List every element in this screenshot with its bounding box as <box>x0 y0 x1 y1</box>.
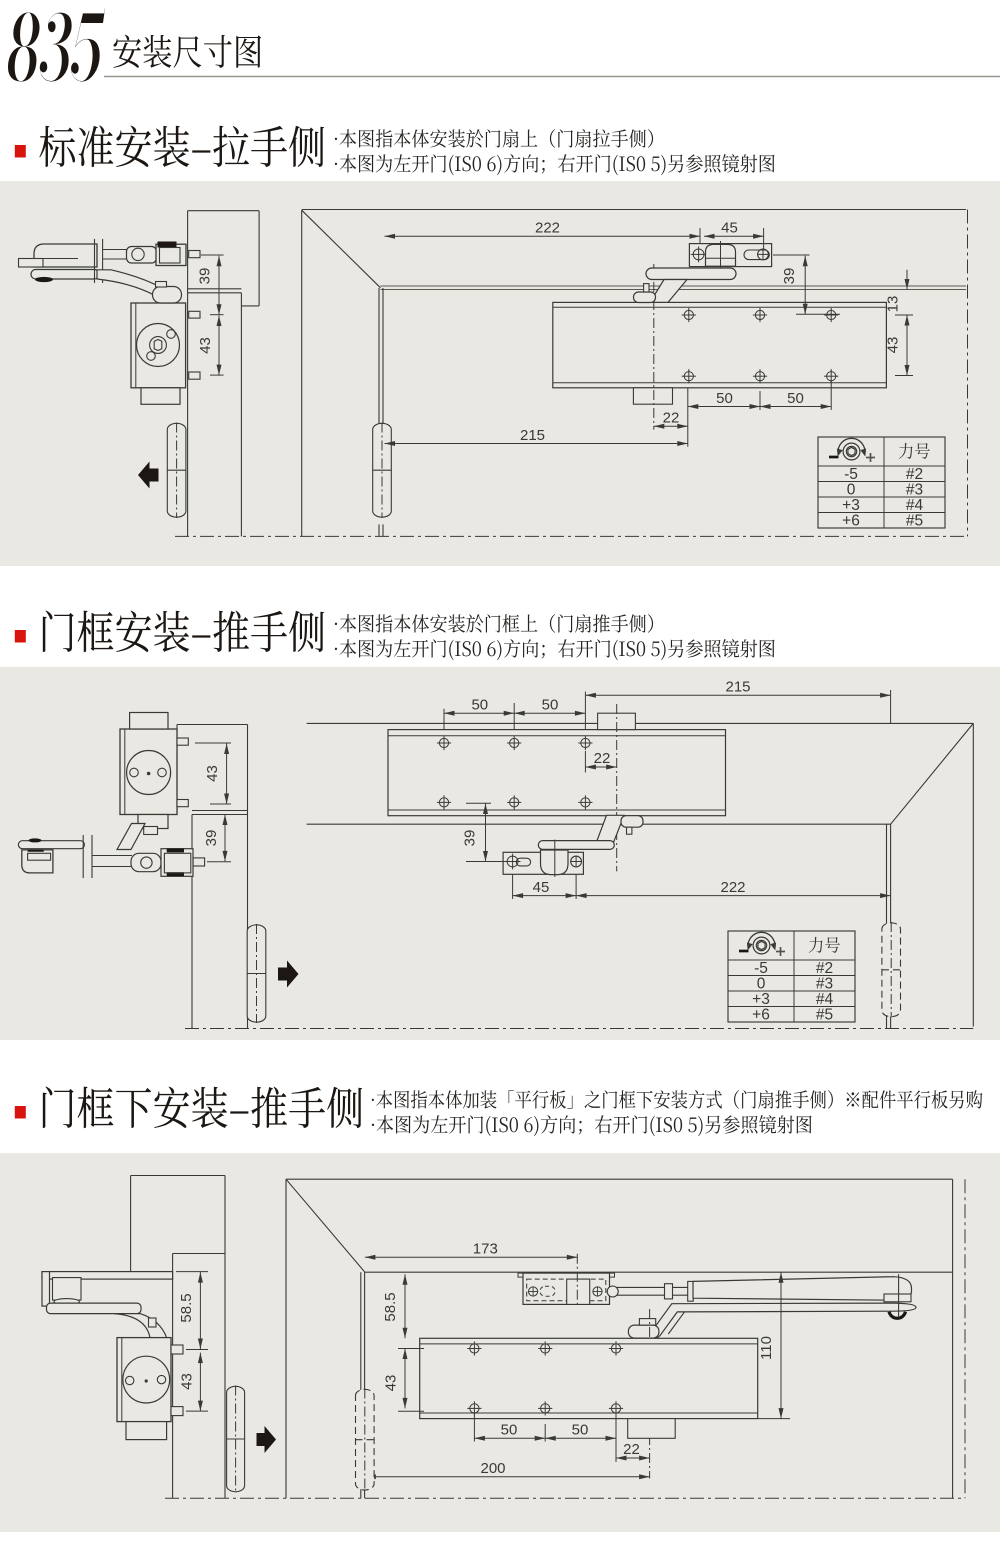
svg-text:13: 13 <box>885 296 902 313</box>
svg-text:43: 43 <box>383 1375 400 1392</box>
svg-text:173: 173 <box>473 1241 498 1258</box>
svg-text:22: 22 <box>663 410 680 427</box>
svg-text:43: 43 <box>179 1373 196 1390</box>
svg-text:39: 39 <box>462 830 479 847</box>
svg-text:0: 0 <box>757 976 766 993</box>
svg-text:110: 110 <box>758 1336 775 1360</box>
svg-text:#2: #2 <box>816 960 833 977</box>
svg-text:-5: -5 <box>844 466 858 483</box>
svg-text:50: 50 <box>471 696 488 713</box>
svg-text:+3: +3 <box>842 497 860 514</box>
svg-text:50: 50 <box>501 1422 518 1439</box>
svg-text:50: 50 <box>716 390 733 407</box>
svg-text:-5: -5 <box>754 960 768 977</box>
svg-text:50: 50 <box>542 696 559 713</box>
svg-text:#5: #5 <box>816 1007 833 1024</box>
svg-text:+6: +6 <box>752 1007 770 1024</box>
svg-text:45: 45 <box>721 220 738 237</box>
svg-text:43: 43 <box>197 337 214 354</box>
svg-text:50: 50 <box>572 1422 589 1439</box>
svg-text:215: 215 <box>725 679 750 696</box>
svg-text:#4: #4 <box>906 497 924 514</box>
svg-text:#2: #2 <box>906 466 923 483</box>
svg-text:22: 22 <box>594 750 611 767</box>
svg-text:222: 222 <box>720 879 745 896</box>
svg-text:222: 222 <box>535 220 560 237</box>
svg-text:#4: #4 <box>816 991 834 1008</box>
svg-text:#3: #3 <box>816 976 833 993</box>
svg-text:58.5: 58.5 <box>178 1293 195 1322</box>
svg-text:22: 22 <box>623 1441 640 1458</box>
svg-text:43: 43 <box>204 765 221 782</box>
svg-text:+6: +6 <box>842 513 860 530</box>
svg-text:50: 50 <box>787 390 804 407</box>
svg-text:0: 0 <box>847 482 856 499</box>
svg-text:215: 215 <box>520 427 545 444</box>
svg-text:45: 45 <box>533 879 550 896</box>
svg-text:39: 39 <box>203 830 220 847</box>
svg-text:#3: #3 <box>906 482 923 499</box>
svg-text:58.5: 58.5 <box>382 1292 399 1321</box>
svg-text:#5: #5 <box>906 513 923 530</box>
svg-text:200: 200 <box>480 1460 505 1477</box>
svg-text:39: 39 <box>197 268 214 285</box>
svg-text:39: 39 <box>781 268 798 285</box>
svg-text:43: 43 <box>885 337 902 354</box>
svg-text:+3: +3 <box>752 991 770 1008</box>
